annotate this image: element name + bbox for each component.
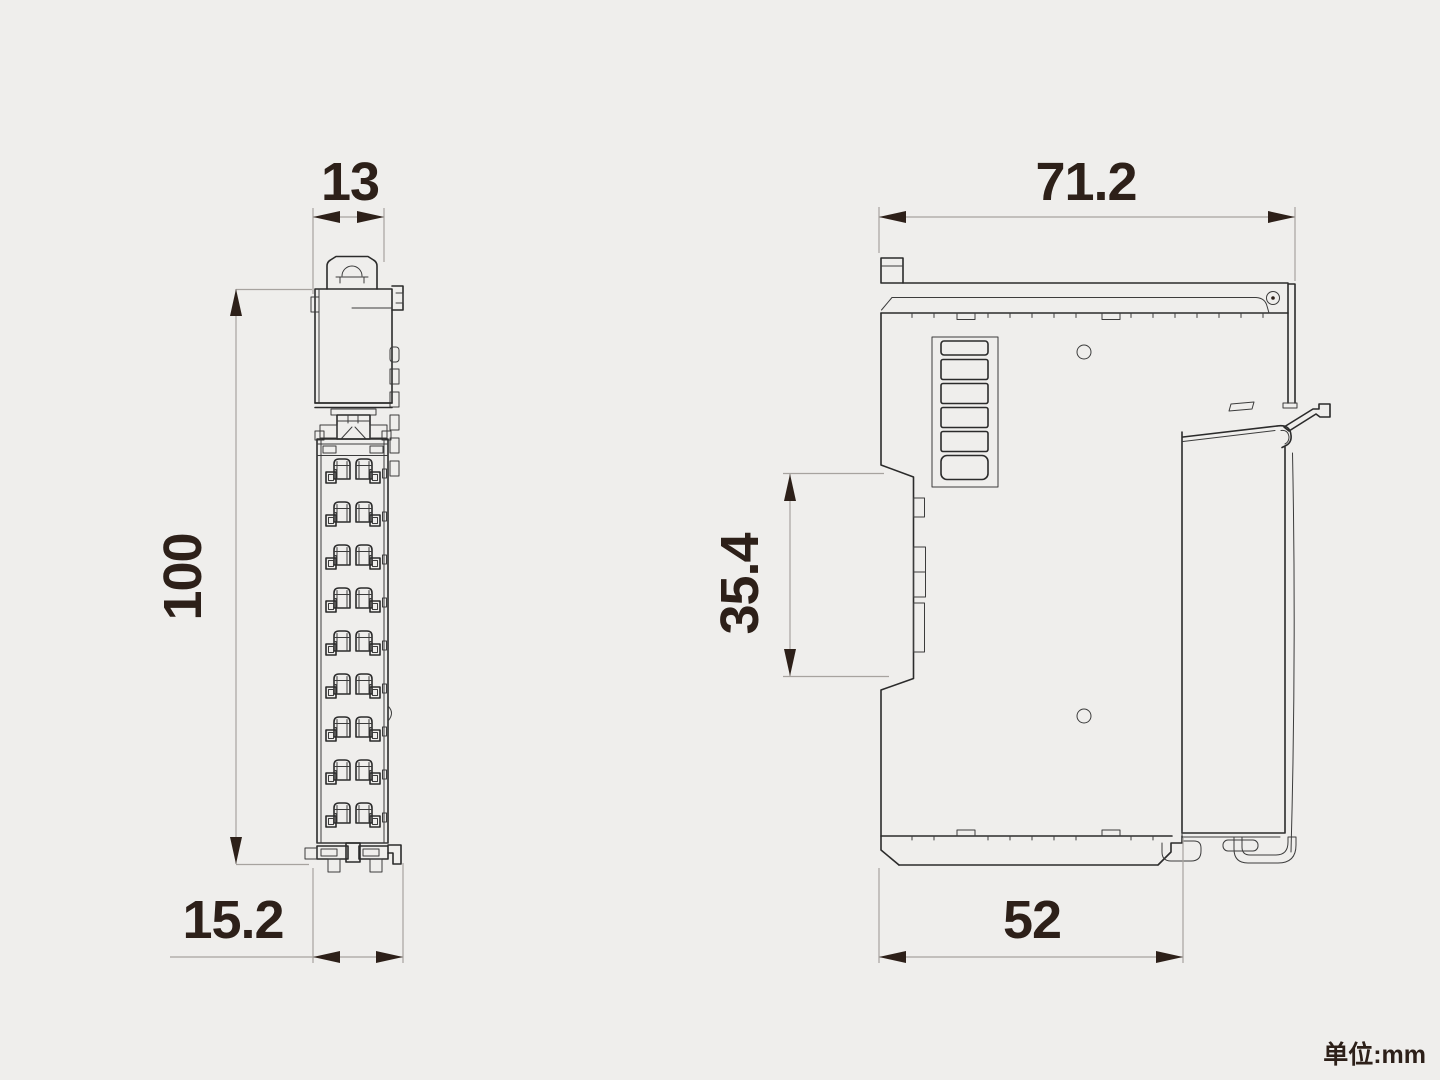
- front-latch-assembly: [315, 403, 392, 440]
- side-left-profile: [881, 313, 926, 865]
- dimension-side-rail-recess: 35.4: [710, 474, 889, 677]
- dimension-label-35-4: 35.4: [710, 532, 770, 634]
- dimension-side-width-total: 71.2: [879, 152, 1295, 281]
- dimension-label-13: 13: [321, 152, 379, 212]
- front-view-drawing: [305, 257, 403, 873]
- terminal-row: [326, 502, 387, 526]
- terminal-row: [326, 674, 387, 698]
- dimension-front-width-bottom: 15.2: [170, 863, 403, 963]
- front-bottom-feet: [305, 843, 401, 872]
- side-view-drawing: [881, 258, 1330, 865]
- front-terminal-block: [317, 439, 392, 843]
- dimension-front-height: 100: [153, 289, 312, 865]
- dimension-label-71-2: 71.2: [1035, 152, 1136, 212]
- dimension-label-100: 100: [153, 533, 213, 620]
- terminal-row: [326, 760, 387, 784]
- mounting-hole-bottom: [1077, 709, 1091, 723]
- side-top-rail: [881, 258, 1297, 408]
- terminal-row: [326, 545, 387, 569]
- dimension-label-52: 52: [1003, 890, 1061, 950]
- side-vent-slots: [932, 337, 998, 487]
- dimension-label-15-2: 15.2: [182, 890, 283, 950]
- front-top-clip: [327, 257, 377, 290]
- front-upper-housing: [311, 286, 403, 403]
- side-latch-arm: [1182, 402, 1330, 833]
- terminal-row: [326, 631, 387, 655]
- side-bottom-rail: [881, 830, 1182, 865]
- dimension-drawing-page: 13 100 15.2 71.2 35.4 52 单位:mm: [0, 0, 1440, 1080]
- terminal-row: [326, 803, 387, 827]
- terminal-row: [326, 588, 387, 612]
- dimension-side-depth-body: 52: [879, 838, 1183, 963]
- unit-note: 单位:mm: [1323, 1040, 1426, 1069]
- side-bottom-clips: [1162, 831, 1296, 863]
- terminal-row: [326, 459, 387, 483]
- terminal-row: [326, 717, 387, 741]
- side-cover-door: [1183, 426, 1294, 852]
- dimension-front-width-top: 13: [313, 152, 384, 294]
- terminal-rows: [326, 459, 387, 827]
- mounting-hole-top: [1077, 345, 1091, 359]
- dimension-drawing: 13 100 15.2 71.2 35.4 52 单位:mm: [0, 0, 1440, 1080]
